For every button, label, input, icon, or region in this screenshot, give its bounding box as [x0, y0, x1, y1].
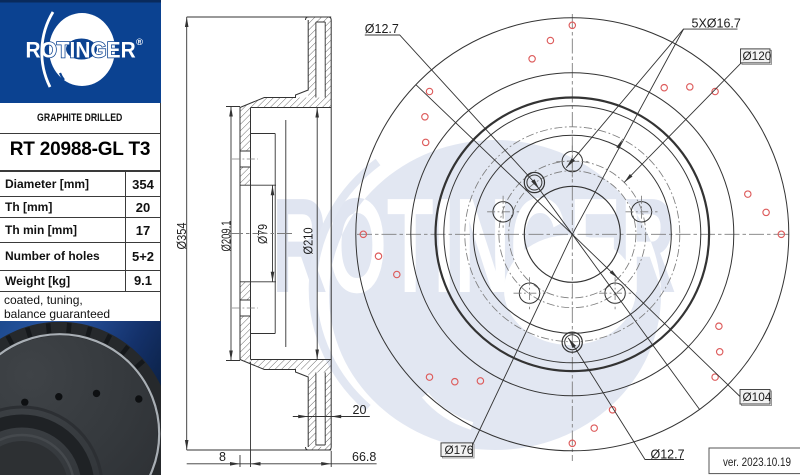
svg-text:Ø210: Ø210 [302, 227, 316, 254]
svg-text:Ø120: Ø120 [743, 49, 772, 63]
svg-text:Ø104: Ø104 [743, 390, 772, 404]
svg-text:Ø354: Ø354 [175, 222, 189, 249]
svg-text:5XØ16.7: 5XØ16.7 [692, 17, 741, 31]
svg-text:Ø79: Ø79 [256, 224, 270, 244]
svg-text:66.8: 66.8 [352, 450, 376, 464]
svg-text:Ø12.7: Ø12.7 [365, 22, 399, 36]
svg-text:20: 20 [353, 403, 367, 417]
svg-text:Ø209.1: Ø209.1 [219, 220, 233, 251]
svg-text:Ø12.7: Ø12.7 [651, 448, 685, 462]
svg-text:ver. 2023.10.19: ver. 2023.10.19 [723, 455, 791, 469]
svg-text:8: 8 [219, 450, 226, 464]
svg-text:Ø176: Ø176 [445, 443, 474, 457]
